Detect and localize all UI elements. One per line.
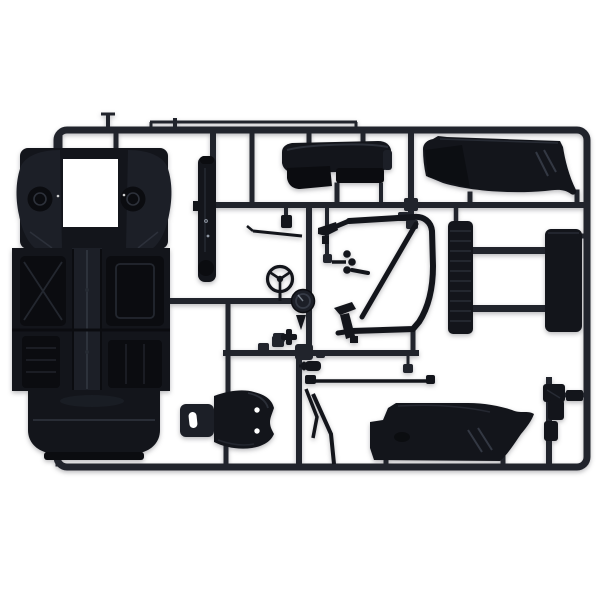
sprue-photo	[0, 0, 600, 600]
cylinder-part	[305, 361, 321, 371]
engine-bay-opening	[63, 159, 118, 227]
footwell-right	[106, 256, 164, 326]
stub-block	[281, 215, 292, 228]
connector-bar-bottom	[473, 305, 547, 312]
rivet-mark	[207, 235, 210, 238]
pronged-lever	[343, 266, 351, 274]
fitting-block-upper	[543, 384, 565, 402]
floor-box-right	[108, 340, 162, 388]
seat-hole	[254, 428, 259, 433]
connector-bar-top	[473, 247, 547, 254]
wheel-hub	[277, 276, 283, 282]
ribbed-core	[448, 221, 473, 334]
photo-stage	[0, 0, 600, 600]
panel-recess	[394, 432, 410, 442]
dashboard-lower-lip	[336, 168, 384, 183]
flat-panel	[545, 229, 582, 332]
seat-back	[214, 390, 274, 448]
shock-tower-right	[121, 187, 146, 212]
cross-piece	[281, 334, 297, 340]
chassis-floor-pan	[12, 148, 171, 460]
fitting-block-lower	[544, 421, 558, 441]
seat-hole	[254, 407, 259, 412]
sprue-photo-svg	[0, 0, 600, 600]
battery-box-left	[22, 336, 60, 388]
dashboard	[282, 141, 392, 189]
fitting-side-tab	[566, 390, 583, 401]
rear-skid-strip	[44, 452, 144, 460]
shock-tower-left	[28, 187, 53, 212]
instrument-binnacle	[287, 166, 332, 189]
